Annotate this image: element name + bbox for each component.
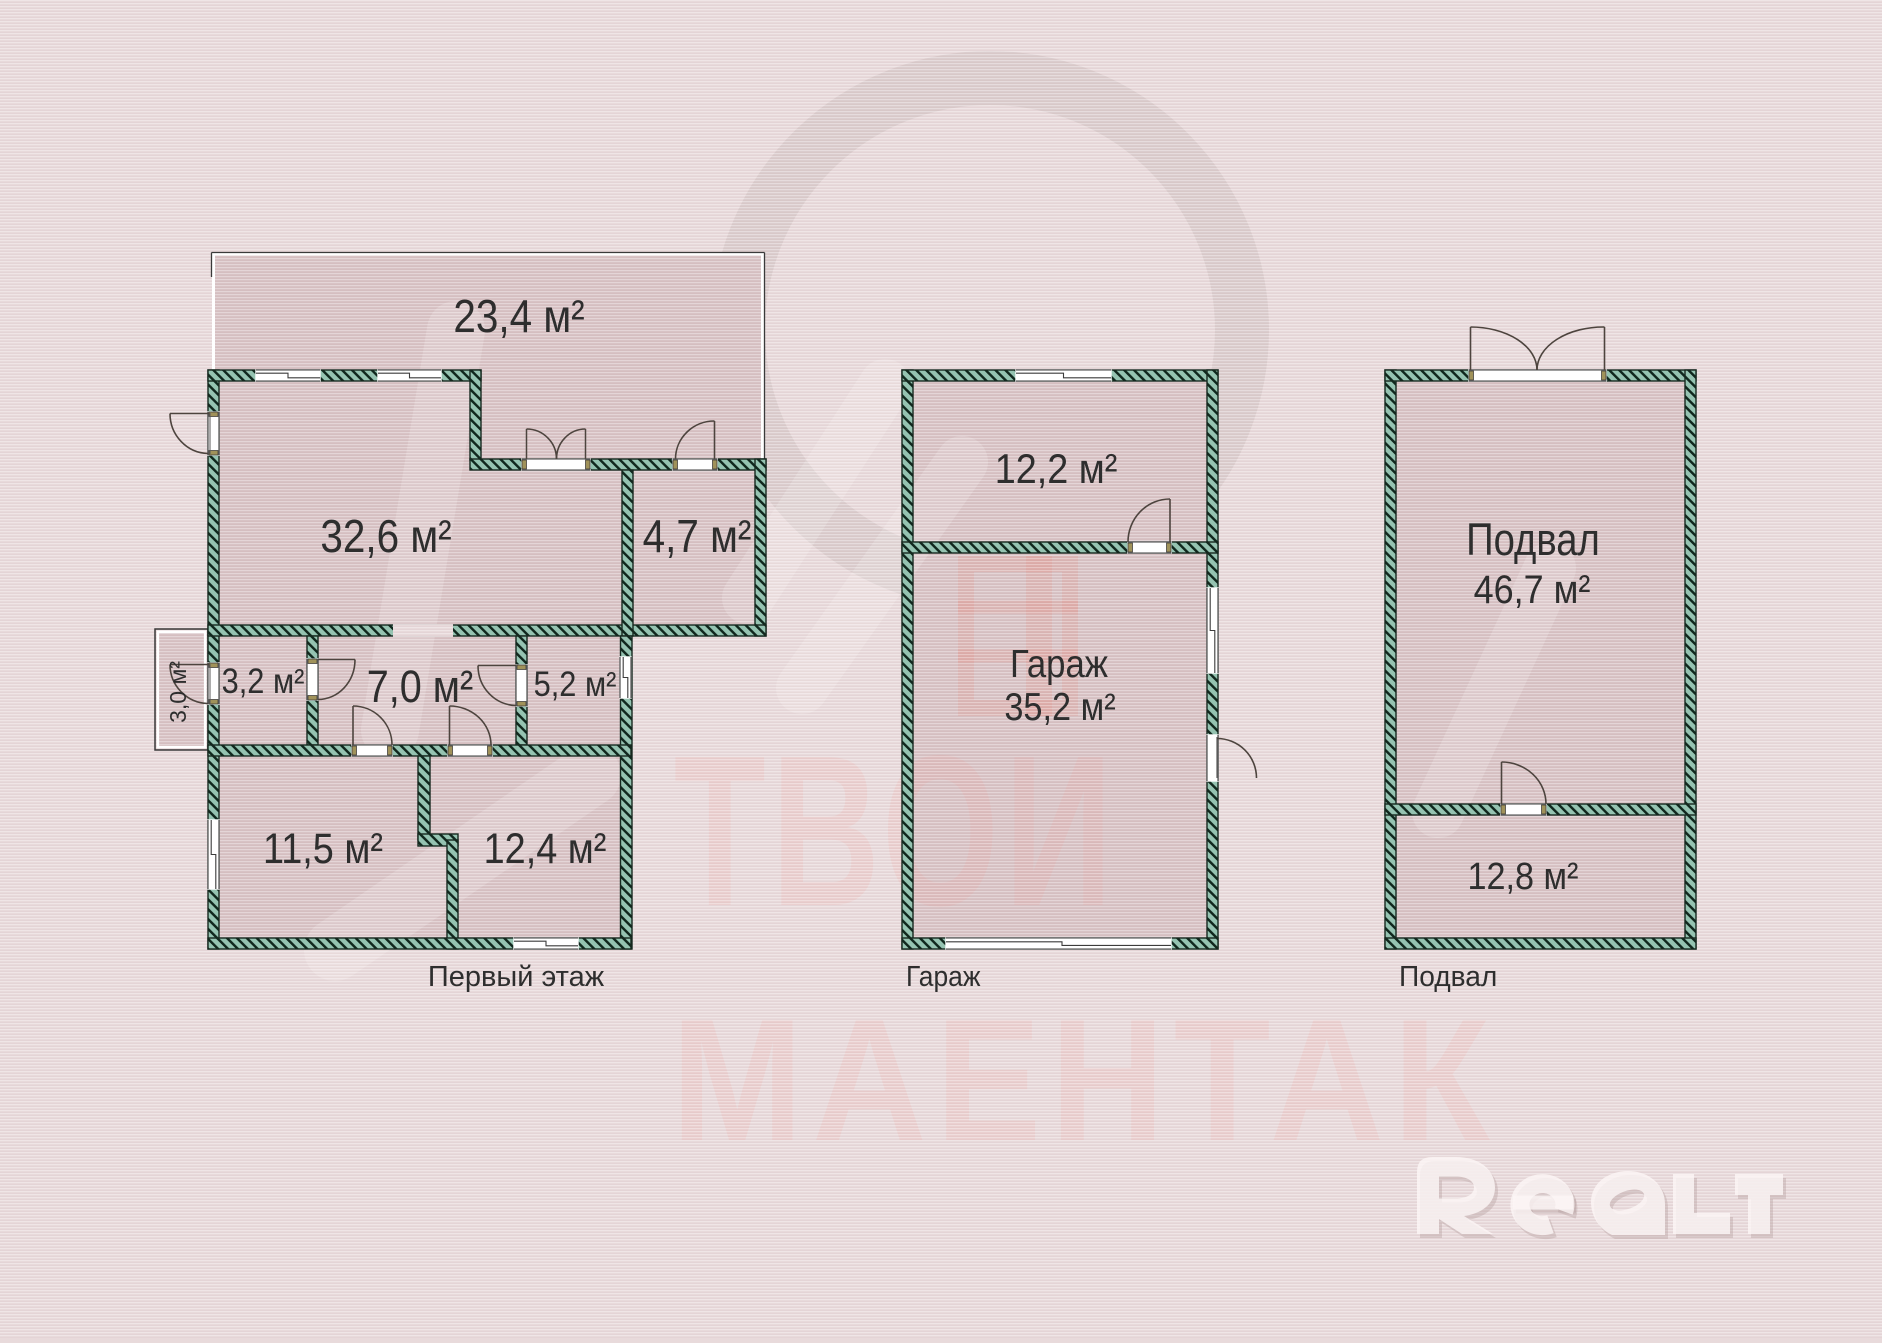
svg-text:32,6 м²: 32,6 м² xyxy=(320,512,451,563)
svg-text:4,7 м²: 4,7 м² xyxy=(643,512,752,563)
svg-text:3,0 м²: 3,0 м² xyxy=(165,661,191,723)
svg-text:Первый этаж: Первый этаж xyxy=(428,961,605,993)
svg-text:Подвал: Подвал xyxy=(1466,514,1600,565)
svg-text:12,4 м²: 12,4 м² xyxy=(484,824,607,873)
svg-text:3,2 м²: 3,2 м² xyxy=(222,661,305,700)
svg-text:35,2 м²: 35,2 м² xyxy=(1004,685,1115,729)
svg-text:Подвал: Подвал xyxy=(1399,961,1497,993)
svg-text:12,2 м²: 12,2 м² xyxy=(995,446,1118,492)
svg-text:11,5 м²: 11,5 м² xyxy=(263,824,383,873)
svg-text:7,0 м²: 7,0 м² xyxy=(367,662,473,712)
svg-text:5,2 м²: 5,2 м² xyxy=(534,664,617,703)
svg-text:23,4 м²: 23,4 м² xyxy=(453,292,584,343)
svg-text:12,8 м²: 12,8 м² xyxy=(1468,854,1579,897)
svg-text:46,7 м²: 46,7 м² xyxy=(1474,568,1591,612)
svg-text:Гараж: Гараж xyxy=(906,960,981,992)
svg-text:Гараж: Гараж xyxy=(1010,642,1108,685)
